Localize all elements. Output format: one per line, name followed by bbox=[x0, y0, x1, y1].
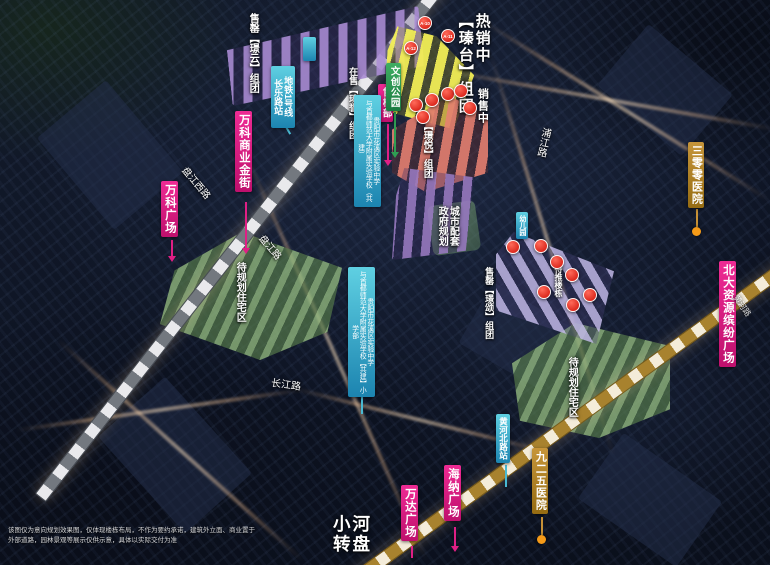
hospital-925-flag: 九二五医院 bbox=[532, 448, 548, 514]
xiaohe-roundabout-caption: 小河 转盘 bbox=[333, 515, 372, 554]
arrowhead bbox=[168, 256, 176, 262]
unit-marker bbox=[454, 84, 468, 98]
leader-line bbox=[394, 112, 396, 152]
leader-line bbox=[505, 465, 507, 487]
cluster-label-jingyue: 【璟悦】组团 bbox=[421, 121, 432, 178]
planned-residential-right-label: 待规划住宅区 bbox=[566, 357, 577, 417]
changle-station-label: 长乐路站 bbox=[273, 69, 283, 125]
unit-marker bbox=[565, 268, 579, 282]
school-middle-flag: 贵阳市花溪区实验中学 与首都师范大学附属实验学校（共建） bbox=[354, 95, 381, 207]
cluster-jingyue-towers bbox=[392, 168, 474, 260]
school-middle-line2: 与首都师范大学附属实验学校（共建） bbox=[356, 98, 371, 204]
small-teal-chip bbox=[303, 37, 316, 61]
aerial-masterplan-map: A-10 A-11 A-12 热销中 【瑧台】组团 销售中 售罄【璟云】组团 在… bbox=[0, 0, 770, 565]
cluster-label-jingsong: 售罄【璟颂】组团 bbox=[484, 267, 494, 339]
arrowhead bbox=[242, 248, 250, 254]
cluster-label-jingyun: 售罄【璟云】组团 bbox=[247, 13, 258, 93]
beida-plaza-flag: 北大资源缤纷广场 bbox=[719, 261, 736, 367]
unit-marker: A-11 bbox=[441, 29, 455, 43]
unit-marker-label: A-11 bbox=[443, 34, 453, 39]
unit-marker: A-12 bbox=[404, 41, 418, 55]
city-support-line2: 政府规划 bbox=[436, 206, 447, 262]
school-primary-line1: 贵阳市花溪区实验中学 bbox=[365, 270, 373, 394]
unit-marker bbox=[441, 87, 455, 101]
arrowhead bbox=[384, 160, 392, 166]
xiaohe-line2: 转盘 bbox=[333, 535, 372, 555]
planned-residential-left-label: 待规划住宅区 bbox=[234, 262, 245, 322]
unit-marker bbox=[550, 255, 564, 269]
leader-line bbox=[245, 202, 247, 248]
metro-line-label: 地铁1号线 bbox=[283, 69, 293, 125]
metro-changle-station-flag: 地铁1号线 长乐路站 bbox=[271, 66, 295, 128]
wanke-plaza-flag: 万科广场 bbox=[161, 181, 178, 237]
cultural-park-flag: 文创公园 bbox=[386, 63, 401, 111]
leader-line bbox=[454, 527, 456, 547]
selling-status: 销售中 bbox=[476, 88, 488, 124]
xiaohe-line1: 小河 bbox=[333, 515, 372, 535]
unit-marker bbox=[425, 93, 439, 107]
unit-marker bbox=[463, 101, 477, 115]
arrowhead bbox=[451, 546, 459, 552]
unit-marker bbox=[583, 288, 597, 302]
school-primary-line2: 与首都师范大学附属实验学校【共建】小学部 bbox=[350, 270, 365, 394]
arrowhead bbox=[391, 152, 399, 158]
hospital-300-flag: 三零零医院 bbox=[688, 142, 704, 208]
haina-plaza-flag: 海纳广场 bbox=[444, 465, 461, 521]
unit-marker bbox=[537, 285, 551, 299]
cluster-label-pending-towers: 待推楼栋 bbox=[553, 265, 562, 297]
school-middle-line1: 贵阳市花溪区实验中学 bbox=[371, 98, 379, 204]
unit-marker bbox=[566, 298, 580, 312]
unit-marker bbox=[416, 110, 430, 124]
leader-line bbox=[541, 517, 543, 535]
disclaimer: 该图仅为意向规划效果图，仅体现楼栋布局，不作为要约承诺，建筑外立面、商业置于 外… bbox=[8, 526, 328, 546]
leader-line bbox=[696, 209, 698, 227]
school-primary-flag: 贵阳市花溪区实验中学 与首都师范大学附属实验学校【共建】小学部 bbox=[348, 267, 375, 397]
kindergarten-flag: 幼儿园 bbox=[516, 212, 528, 239]
huanghe-station-flag: 黄河北路站 bbox=[496, 414, 510, 463]
hospital-925-dot bbox=[537, 535, 546, 544]
city-support-label: 城市配套 政府规划 bbox=[436, 206, 458, 262]
wanda-plaza-flag: 万达广场 bbox=[401, 485, 418, 541]
unit-marker-label: A-12 bbox=[406, 46, 416, 51]
unit-marker bbox=[534, 239, 548, 253]
unit-marker: A-10 bbox=[418, 16, 432, 30]
disclaimer-line2: 外部道路，园林景观等展示仅供示意，具体以实际交付为准 bbox=[8, 536, 328, 546]
unit-marker-label: A-10 bbox=[420, 21, 430, 26]
leader-line bbox=[361, 396, 363, 414]
wanke-golden-street-flag: 万科商业金街 bbox=[235, 111, 252, 192]
unit-marker bbox=[506, 240, 520, 254]
leader-line bbox=[171, 240, 173, 256]
leader-line bbox=[387, 124, 389, 160]
hospital-300-dot bbox=[692, 227, 701, 236]
city-support-line1: 城市配套 bbox=[447, 206, 458, 262]
leader-line bbox=[411, 546, 413, 558]
disclaimer-line1: 该图仅为意向规划效果图，仅体现楼栋布局，不作为要约承诺，建筑外立面、商业置于 bbox=[8, 526, 328, 536]
